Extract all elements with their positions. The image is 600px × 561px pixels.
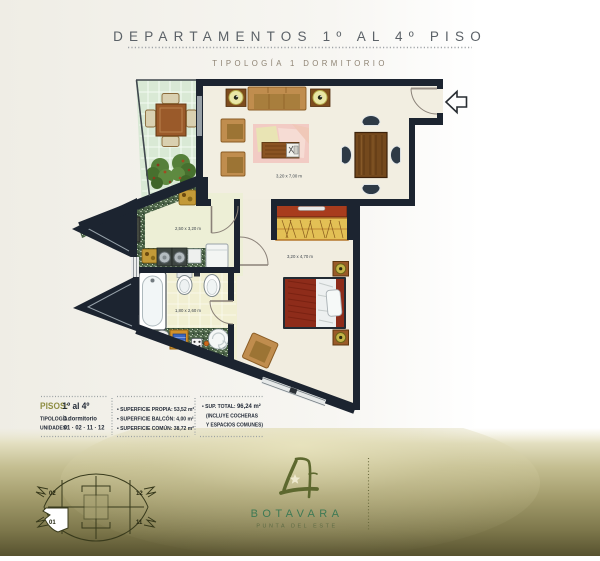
svg-text:• SUPERFICIE PROPIA: 53,52 m²: • SUPERFICIE PROPIA: 53,52 m² (117, 407, 194, 413)
svg-text:• SUPERFICIE BALCÓN: 4,00 m²: • SUPERFICIE BALCÓN: 4,00 m² (117, 414, 194, 422)
svg-text:3,20 x 7,00 m: 3,20 x 7,00 m (276, 174, 302, 179)
svg-text:BOTAVARA: BOTAVARA (251, 508, 344, 520)
svg-text:1º al 4º: 1º al 4º (62, 401, 90, 412)
svg-text:(INCLUYE COCHERAS: (INCLUYE COCHERAS (206, 413, 259, 419)
svg-text:3,20 x 4,70 m: 3,20 x 4,70 m (287, 254, 313, 259)
svg-text:1,80 x 2,60 m: 1,80 x 2,60 m (175, 308, 201, 313)
svg-text:01: 01 (49, 520, 56, 526)
svg-text:02: 02 (49, 491, 56, 497)
svg-text:11: 11 (136, 520, 143, 526)
svg-text:01 · 02 · 11 · 12: 01 · 02 · 11 · 12 (64, 424, 105, 431)
svg-text:PUNTA DEL ESTE: PUNTA DEL ESTE (256, 524, 337, 530)
svg-text:1 dormitorio: 1 dormitorio (63, 415, 97, 422)
svg-text:TIPOLOGÍA 1 DORMITORIO: TIPOLOGÍA 1 DORMITORIO (212, 59, 388, 68)
svg-text:• SUP. TOTAL: 96,24 m²: • SUP. TOTAL: 96,24 m² (202, 403, 261, 410)
svg-text:Y ESPACIOS COMUNES): Y ESPACIOS COMUNES) (206, 422, 263, 428)
svg-text:2,50 x 3,20 m: 2,50 x 3,20 m (175, 226, 201, 231)
svg-text:12: 12 (136, 491, 143, 497)
svg-text:DEPARTAMENTOS 1º AL 4º PISO: DEPARTAMENTOS 1º AL 4º PISO (113, 29, 487, 44)
svg-text:• SUPERFICIE COMÚN: 38,72 m²: • SUPERFICIE COMÚN: 38,72 m² (117, 425, 194, 432)
